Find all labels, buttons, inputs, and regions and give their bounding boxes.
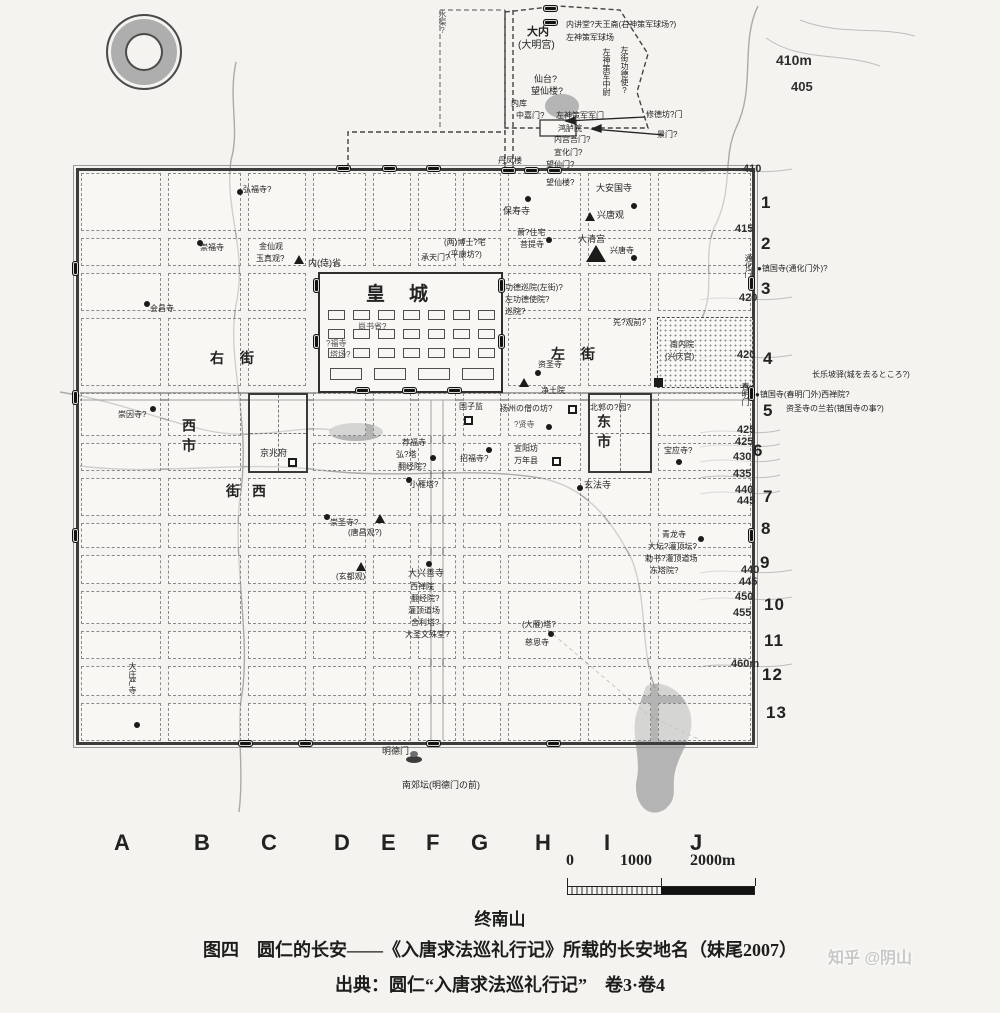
grid-row-number: 7 — [763, 487, 773, 507]
city-block — [81, 318, 161, 386]
palace-office-box — [353, 348, 370, 358]
map-label: 左街功德使? — [620, 46, 628, 95]
map-label: 东市 — [597, 414, 611, 454]
city-block — [588, 591, 651, 624]
gate-marker — [748, 528, 755, 543]
map-label: 资圣寺 — [538, 360, 562, 370]
grid-column-letter: I — [604, 830, 610, 856]
map-label: 灌顶道场 — [408, 606, 440, 616]
map-label: 东塔院? — [650, 566, 678, 576]
gate-marker — [447, 387, 462, 394]
map-label: 国子监 — [459, 402, 483, 412]
watermark: 知乎 @阴山 — [828, 944, 912, 968]
map-label: 招福寺? — [460, 454, 488, 464]
palace-office-box — [378, 310, 395, 320]
city-block — [168, 273, 241, 311]
city-block — [508, 523, 581, 548]
map-label: 内讲堂?天王斋(右神策军球场?) — [566, 20, 676, 30]
map-label: (大明宫) — [518, 40, 555, 52]
map-label: 巡院? — [505, 307, 525, 317]
temple-marker — [698, 536, 704, 542]
city-block — [81, 443, 161, 471]
grid-column-letter: A — [114, 830, 130, 856]
gate-marker — [313, 334, 320, 349]
city-block — [588, 631, 651, 659]
gate-marker — [238, 740, 253, 747]
grid-row-number: 11 — [764, 631, 784, 651]
city-block — [313, 478, 366, 516]
city-block — [588, 273, 651, 311]
grid-row-number: 3 — [761, 279, 771, 299]
map-label: 大兴善寺 — [408, 568, 444, 579]
office-site-marker — [464, 416, 473, 425]
palace-site-marker — [654, 378, 663, 387]
grid-column-letter: H — [535, 830, 551, 856]
map-label: 大安国寺 — [596, 183, 632, 194]
temple-marker — [134, 722, 140, 728]
gate-marker — [336, 165, 351, 172]
map-label: 小雁塔? — [410, 480, 438, 490]
palace-office-box — [330, 368, 362, 380]
map-label: 菩提寺 — [520, 240, 544, 250]
city-block — [248, 555, 306, 584]
city-block — [373, 591, 411, 624]
map-label: 仙台? — [534, 74, 557, 85]
city-block — [168, 666, 241, 696]
city-block — [658, 666, 751, 696]
elevation-value: 425 — [735, 436, 753, 448]
map-label: 修德坊?门 — [646, 110, 682, 120]
scanned-changan-map-page: 0 1000 2000m 终南山 图四 圆仁的长安——《入唐求法巡礼行记》所载的… — [0, 0, 1000, 1013]
map-label: 大清宫 — [578, 234, 605, 245]
grid-column-letter: C — [261, 830, 277, 856]
palace-office-box — [478, 310, 495, 320]
map-label: 慈恩寺 — [525, 638, 549, 648]
map-label: 长乐坡驿(城を去るところ?) — [812, 370, 910, 380]
city-block — [463, 523, 501, 548]
map-label: 右街 — [210, 350, 270, 367]
palace-office-box — [462, 368, 494, 380]
temple-marker — [548, 631, 554, 637]
map-label: 宝应寺? — [664, 446, 692, 456]
map-label: 左功德使院? — [505, 295, 549, 305]
city-block — [463, 478, 501, 516]
city-block — [81, 173, 161, 231]
city-block — [658, 631, 751, 659]
elevation-value: 420 — [739, 292, 757, 304]
map-label: 萧?住宅 — [517, 228, 545, 238]
map-label: 内(侍)省 — [308, 258, 341, 269]
map-label: 北郭の?园? — [590, 403, 631, 413]
city-block — [463, 393, 501, 436]
map-label: 崇因寺? — [118, 410, 146, 420]
grid-row-number: 12 — [762, 665, 783, 685]
elevation-value: 430 — [733, 451, 751, 463]
city-block — [508, 478, 581, 516]
city-block — [313, 666, 366, 696]
city-block — [81, 478, 161, 516]
map-label: 南内院 — [670, 340, 694, 350]
city-block — [463, 591, 501, 624]
gate-marker — [355, 387, 370, 394]
map-label: 弘福寺? — [243, 185, 271, 195]
temple-marker — [535, 370, 541, 376]
city-block — [463, 631, 501, 659]
map-label: 翻经院? — [398, 462, 426, 472]
city-block — [313, 443, 366, 471]
city-block — [313, 703, 366, 741]
map-label: 崇圣寺? — [330, 518, 358, 528]
grid-row-number: 6 — [753, 441, 763, 461]
map-label: 先?观前? — [613, 318, 646, 328]
map-label: 功德巡院(左街)? — [505, 283, 563, 293]
map-label: 中嘉门? — [516, 111, 544, 121]
temple-marker — [324, 514, 330, 520]
city-block — [373, 703, 411, 741]
map-label: 青龙寺 — [662, 530, 686, 540]
map-label: 荐福寺 — [402, 438, 426, 448]
city-block — [463, 703, 501, 741]
city-block — [81, 238, 161, 266]
elevation-value: 425 — [737, 424, 755, 436]
west-market-block — [248, 393, 308, 473]
city-block — [168, 591, 241, 624]
elevation-value: 445 — [737, 495, 755, 507]
map-label: 南郊坛(明德门の前) — [402, 780, 480, 791]
temple-marker — [237, 189, 243, 195]
city-block — [373, 555, 411, 584]
scale-bar-solid-half — [661, 887, 754, 894]
map-label: 玄法寺 — [584, 480, 611, 491]
taoist-abbey-marker — [294, 255, 304, 264]
grid-row-number: 2 — [761, 234, 771, 254]
palace-office-box — [403, 348, 420, 358]
scale-tick-1000: 1000 — [620, 852, 652, 870]
map-label: 资圣寺の兰若(镇国寺の事?) — [786, 404, 884, 414]
city-block — [508, 666, 581, 696]
elevation-value: 420 — [737, 349, 755, 361]
map-label: (两)博士?宅 — [444, 238, 486, 248]
gate-marker — [402, 387, 417, 394]
grid-row-number: 8 — [761, 519, 771, 539]
scale-bar-rule — [567, 886, 755, 895]
scale-tickmark — [661, 878, 662, 886]
temple-marker — [631, 255, 637, 261]
map-label: 舍利塔? — [411, 618, 439, 628]
city-block — [313, 173, 366, 231]
city-block — [248, 523, 306, 548]
scale-bar-hatched-half — [568, 887, 661, 894]
map-label: 尚书省? — [358, 322, 386, 332]
gate-marker — [382, 165, 397, 172]
temple-marker — [406, 477, 412, 483]
city-block — [168, 523, 241, 548]
city-block — [313, 591, 366, 624]
palace-office-box — [478, 329, 495, 339]
city-block — [418, 666, 456, 696]
palace-office-box — [453, 310, 470, 320]
taoist-abbey-marker — [519, 378, 529, 387]
map-label: 宣化门? — [554, 148, 582, 158]
grid-column-letter: F — [426, 830, 439, 856]
map-label: 景门? — [657, 130, 677, 140]
map-label: 左神策军军门 — [556, 111, 604, 121]
map-label: 街西 — [226, 483, 278, 500]
grid-row-number: 5 — [763, 401, 773, 421]
map-label: 大庄严寺 — [128, 662, 136, 694]
map-label: 宣阳坊 — [514, 444, 538, 454]
grid-row-number: 9 — [760, 553, 770, 573]
office-site-marker — [288, 458, 297, 467]
map-label: 会昌寺 — [150, 304, 174, 314]
gate-marker — [543, 5, 558, 12]
elevation-value: 405 — [791, 79, 813, 94]
grid-column-letter: E — [381, 830, 396, 856]
palace-office-box — [374, 368, 406, 380]
map-label: 明德门 — [382, 746, 409, 757]
gate-marker — [748, 386, 755, 401]
map-label: 左神策军中尉 — [602, 48, 610, 96]
gate-marker — [524, 167, 539, 174]
map-label: 内库 — [511, 99, 527, 109]
map-label: 内宫吾门? — [554, 135, 590, 145]
map-label: 崇福寺 — [200, 243, 224, 253]
map-label: 净土院 — [541, 386, 565, 396]
temple-marker — [150, 406, 156, 412]
gate-marker — [501, 167, 516, 174]
gate-marker — [498, 334, 505, 349]
gate-marker — [72, 390, 79, 405]
elevation-value: 435 — [733, 468, 751, 480]
temple-marker — [486, 447, 492, 453]
scale-bar: 0 1000 2000m — [558, 852, 768, 904]
city-block — [248, 631, 306, 659]
scale-tick-0: 0 — [566, 852, 574, 870]
gate-marker — [543, 19, 558, 26]
grid-row-number: 10 — [764, 595, 785, 615]
palace-office-box — [428, 329, 445, 339]
palace-office-box — [403, 310, 420, 320]
city-block — [588, 703, 651, 741]
palace-office-box — [418, 368, 450, 380]
city-block — [588, 523, 651, 548]
elevation-value: 410m — [776, 52, 812, 68]
map-label: 万年县 — [514, 456, 538, 466]
gate-marker — [426, 740, 441, 747]
temple-marker — [430, 455, 436, 461]
palace-office-box — [428, 348, 445, 358]
gate-marker — [498, 278, 505, 293]
city-block — [81, 703, 161, 741]
city-block — [418, 523, 456, 548]
city-block — [168, 443, 241, 471]
compass-ring-symbol — [106, 14, 182, 90]
map-label: 水渠? — [438, 10, 446, 35]
city-block — [588, 555, 651, 584]
city-block — [508, 703, 581, 741]
city-block — [658, 238, 751, 266]
city-block — [248, 173, 306, 231]
grid-row-number: 4 — [763, 349, 773, 369]
grid-row-number: 13 — [766, 703, 787, 723]
city-block — [248, 591, 306, 624]
map-label: 玉真观? — [256, 254, 284, 264]
palace-office-box — [478, 348, 495, 358]
map-label: 保寿寺 — [503, 206, 530, 217]
map-label: (玄都观) — [336, 572, 365, 582]
map-label: 弘?塔 — [396, 450, 416, 460]
city-block — [168, 555, 241, 584]
gate-marker — [298, 740, 313, 747]
city-block — [81, 666, 161, 696]
large-taoist-abbey-marker — [586, 245, 606, 262]
map-label: 金仙观 — [259, 242, 283, 252]
city-block — [418, 703, 456, 741]
temple-marker — [546, 424, 552, 430]
map-label: ?福寺 — [326, 339, 346, 349]
city-block — [373, 666, 411, 696]
map-label: 左神策军球场 — [566, 33, 614, 43]
map-label: (平康坊?) — [448, 250, 482, 260]
map-label: 西禅院 — [410, 582, 434, 592]
map-label: 翻经院? — [411, 594, 439, 604]
mountain-label: 终南山 — [0, 905, 1000, 930]
city-block — [373, 478, 411, 516]
city-block — [373, 393, 411, 436]
elevation-value: 445 — [739, 576, 757, 588]
temple-marker — [546, 237, 552, 243]
map-label: (兴庆宫) — [665, 352, 694, 362]
map-label: 鸿胪院 — [558, 124, 582, 134]
scale-tickmark — [755, 878, 756, 886]
elevation-value: 415 — [735, 223, 753, 235]
gate-marker — [547, 167, 562, 174]
temple-marker — [631, 203, 637, 209]
city-block — [168, 631, 241, 659]
city-block — [81, 631, 161, 659]
temple-marker — [525, 196, 531, 202]
grid-column-letter: B — [194, 830, 210, 856]
city-block — [313, 393, 366, 436]
palace-office-box — [403, 329, 420, 339]
city-block — [168, 173, 241, 231]
map-label: ●镇国寺(通化门外)? — [757, 264, 828, 274]
map-label: 丹凤楼 — [498, 156, 522, 166]
map-label: 大坛?灌顶坛? — [648, 542, 697, 552]
palace-office-box — [428, 310, 445, 320]
grid-column-letter: D — [334, 830, 350, 856]
city-block — [248, 273, 306, 311]
gate-marker — [72, 261, 79, 276]
city-block — [463, 173, 501, 231]
city-block — [658, 273, 751, 311]
figure-source: 出典：圆仁“入唐求法巡礼行记” 卷3·卷4 — [0, 971, 1000, 997]
gate-marker — [426, 165, 441, 172]
city-block — [248, 703, 306, 741]
gate-marker — [748, 276, 755, 291]
palace-office-box — [353, 310, 370, 320]
temple-marker — [197, 240, 203, 246]
map-label: (大雁)塔? — [522, 620, 556, 630]
city-block — [81, 555, 161, 584]
elevation-value: 440 — [741, 564, 759, 576]
map-label: 望仙楼? — [546, 178, 574, 188]
map-label: 大内 — [527, 26, 549, 39]
map-label: ●镇国寺(春明门外)西禅院? — [755, 390, 850, 400]
taoist-abbey-marker — [356, 562, 366, 571]
map-label: 望仙楼? — [531, 86, 563, 97]
city-block — [81, 591, 161, 624]
elevation-value: 460m — [731, 658, 759, 670]
city-block — [418, 173, 456, 231]
map-label: 兴唐寺 — [610, 246, 634, 256]
palace-office-box — [328, 329, 345, 339]
map-label: ?贤寺 — [514, 420, 534, 430]
grid-column-letter: J — [690, 830, 702, 856]
map-label: 西市 — [182, 418, 196, 458]
city-block — [248, 666, 306, 696]
elevation-value: 455 — [733, 607, 751, 619]
gate-marker — [546, 740, 561, 747]
map-label: 皇城 — [366, 284, 452, 307]
city-block — [373, 173, 411, 231]
taoist-abbey-marker — [585, 212, 595, 221]
office-site-marker — [568, 405, 577, 414]
elevation-value: 450 — [735, 591, 753, 603]
altar-symbol — [406, 756, 422, 763]
palace-office-box — [453, 348, 470, 358]
gate-marker — [72, 528, 79, 543]
city-block — [168, 703, 241, 741]
temple-marker — [676, 459, 682, 465]
city-block — [508, 555, 581, 584]
city-block — [588, 173, 651, 231]
map-label: 京兆府 — [260, 448, 287, 459]
temple-marker — [426, 561, 432, 567]
map-label: 扬州の僧の坊? — [500, 404, 552, 414]
palace-office-box — [378, 348, 395, 358]
map-label: 塔场? — [330, 350, 350, 360]
city-block — [313, 631, 366, 659]
palace-office-box — [328, 310, 345, 320]
city-block — [508, 238, 581, 266]
map-label: 大圣文殊堂? — [405, 630, 449, 640]
gate-marker — [313, 278, 320, 293]
city-block — [463, 555, 501, 584]
city-block — [418, 393, 456, 436]
city-block — [81, 523, 161, 548]
grid-column-letter: G — [471, 830, 488, 856]
map-label: 勅书?灌顶道场 — [645, 554, 697, 564]
grid-row-number: 1 — [761, 193, 771, 213]
temple-marker — [144, 301, 150, 307]
map-label: 承天门? — [421, 253, 449, 263]
city-block — [168, 393, 241, 436]
office-site-marker — [552, 457, 561, 466]
elevation-value: 410 — [743, 163, 761, 175]
scale-tickmark — [567, 878, 568, 886]
city-block — [373, 238, 411, 266]
taoist-abbey-marker — [375, 514, 385, 523]
map-label: 兴唐观 — [597, 210, 624, 221]
city-block — [658, 703, 751, 741]
city-block — [463, 666, 501, 696]
temple-marker — [577, 485, 583, 491]
map-label: 通化门 — [744, 254, 752, 278]
palace-office-box — [453, 329, 470, 339]
city-block — [588, 666, 651, 696]
map-label: (唐昌观?) — [348, 528, 382, 538]
